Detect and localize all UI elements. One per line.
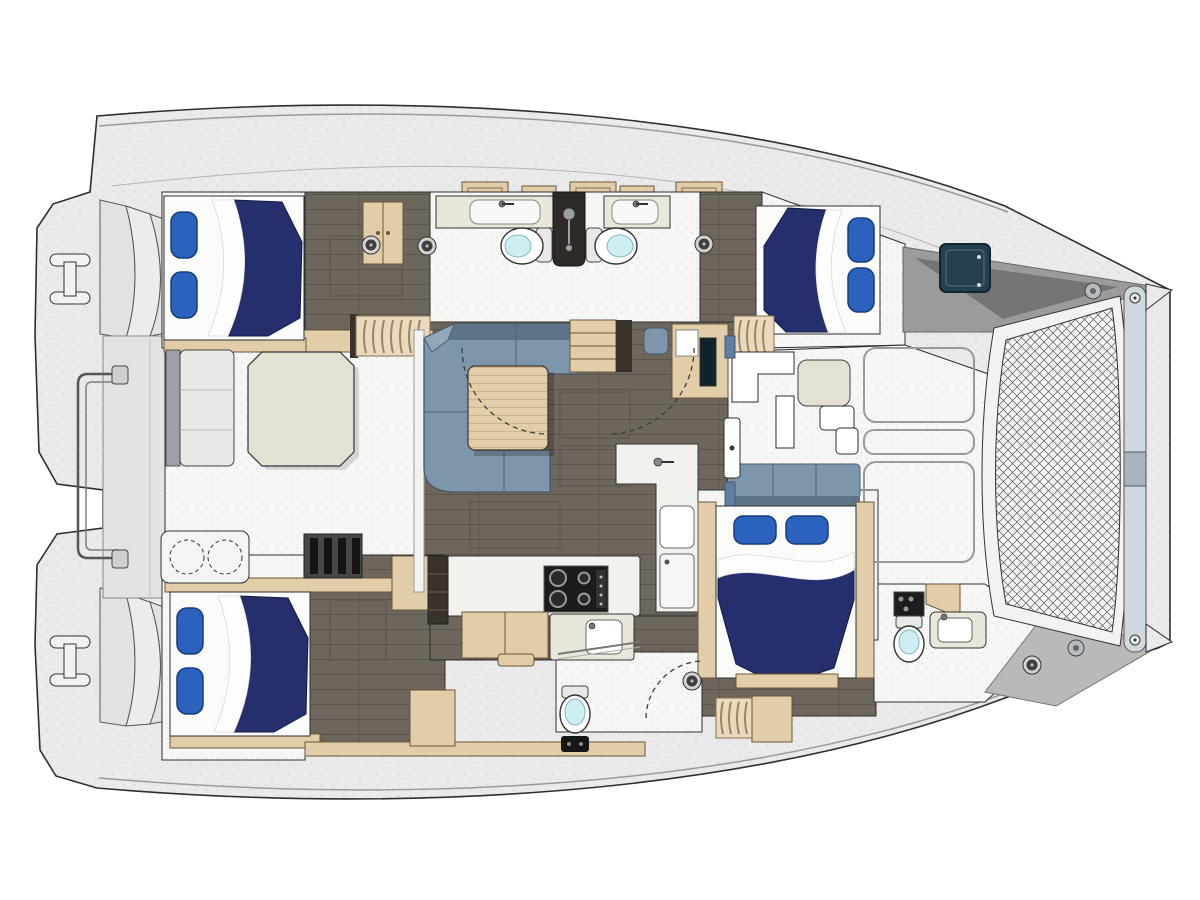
cockpit-steps-slats xyxy=(304,534,362,578)
head-sink xyxy=(930,612,986,648)
hull-bottom-sill xyxy=(305,742,645,756)
toilet-bow xyxy=(894,616,924,662)
toilet-top-left xyxy=(501,228,552,264)
galley-down xyxy=(442,556,640,666)
wardrobe-port xyxy=(363,202,403,264)
floor-plan-canvas xyxy=(0,0,1200,900)
trampoline-net xyxy=(996,308,1121,632)
shower-divider xyxy=(553,192,585,266)
bed-fwd-stbd xyxy=(698,502,874,688)
window-pane-a xyxy=(725,336,735,358)
fwd-cockpit-bench xyxy=(730,464,860,508)
galley-sideboard xyxy=(462,612,548,666)
hull-stairs-stbd xyxy=(428,556,448,624)
bed-aft-stbd xyxy=(170,592,310,736)
forward-crossbeam xyxy=(1124,286,1146,652)
cockpit-bench-left xyxy=(166,350,234,466)
fwd-cockpit-table xyxy=(798,360,850,406)
companionway-coil-stbd xyxy=(734,316,774,356)
toilet-top-right xyxy=(586,228,637,264)
stbd-cabinet-a xyxy=(410,690,455,746)
salon-coffee-table xyxy=(468,366,554,456)
deck-hatch-teal xyxy=(940,244,990,292)
toilet-bottom xyxy=(560,686,590,752)
electrical-panel xyxy=(894,592,924,616)
companionway-coil-bow xyxy=(716,696,792,742)
stove xyxy=(544,566,608,612)
grill-unit xyxy=(161,531,249,583)
window-pane-b xyxy=(725,482,735,506)
cockpit-table xyxy=(248,352,359,470)
catamaran-floor-plan xyxy=(0,0,1200,900)
bed-fwd-port xyxy=(756,206,880,334)
salon-aft-sill xyxy=(414,330,424,592)
bed-aft-port xyxy=(164,196,304,340)
salon-stairs-port xyxy=(570,320,632,372)
